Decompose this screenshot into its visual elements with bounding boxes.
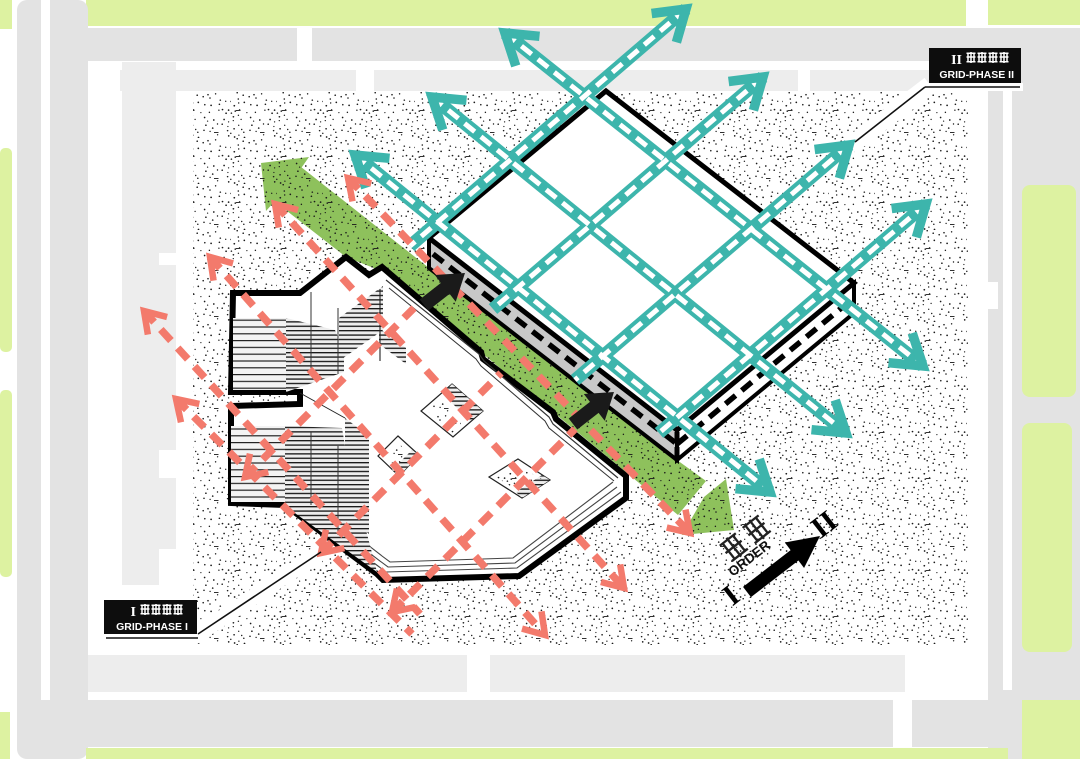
svg-text:I: I xyxy=(131,605,136,620)
svg-text:GRID-PHASE I: GRID-PHASE I xyxy=(116,621,188,633)
svg-text:II: II xyxy=(951,53,962,68)
svg-text:GRID-PHASE II: GRID-PHASE II xyxy=(939,69,1014,81)
